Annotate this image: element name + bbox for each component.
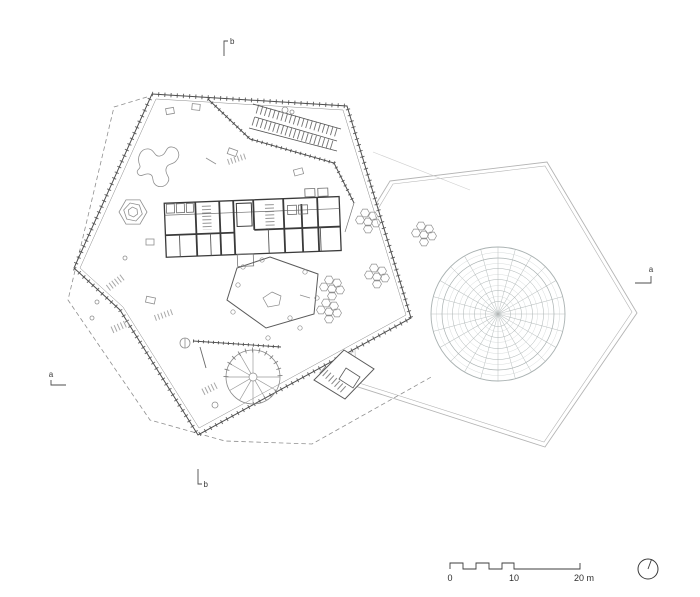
section-label-a-right: a <box>649 265 654 274</box>
section-marker-a-right: a <box>635 265 654 283</box>
section-label-b-bottom: b <box>204 480 209 489</box>
geodesic-dome <box>431 247 565 381</box>
section-label-b-top: b <box>230 37 235 46</box>
scale-label-10: 10 <box>509 573 519 583</box>
scale-label-0: 0 <box>447 573 452 583</box>
floor-plan-sheet: b b a a 0 10 20 m <box>0 0 700 597</box>
scale-label-20m: 20 m <box>574 573 594 583</box>
scale-bar: 0 10 20 m <box>447 563 594 583</box>
main-building-plan <box>74 94 437 435</box>
section-marker-b-bottom: b <box>198 469 209 489</box>
section-label-a-left: a <box>49 370 54 379</box>
north-indicator-icon <box>638 559 658 579</box>
dome-center <box>497 313 499 315</box>
scale-bar-crenellation <box>450 563 580 569</box>
floor-plan-canvas: b b a a 0 10 20 m <box>0 0 700 597</box>
section-marker-b-top: b <box>224 37 235 56</box>
section-marker-a-left: a <box>49 370 66 385</box>
